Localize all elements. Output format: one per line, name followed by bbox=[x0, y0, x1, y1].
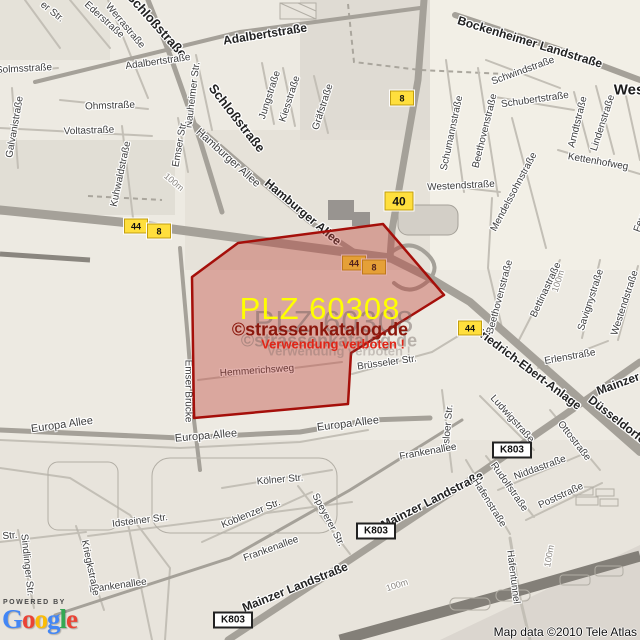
google-logo-letter: G bbox=[2, 604, 22, 634]
google-logo[interactable]: Google bbox=[2, 604, 77, 635]
google-logo-letter: o bbox=[35, 604, 48, 634]
google-logo-letter: g bbox=[47, 604, 60, 634]
map-data-attribution: Map data ©2010 Tele Atlas bbox=[494, 625, 637, 639]
google-logo-letter: o bbox=[22, 604, 35, 634]
verboten-watermark: Verwendung verboten ! bbox=[261, 337, 405, 352]
map-viewport[interactable]: er Str.EderstraßeWerrastraßeSchloßstraße… bbox=[0, 0, 640, 640]
google-logo-letter: e bbox=[66, 604, 77, 634]
